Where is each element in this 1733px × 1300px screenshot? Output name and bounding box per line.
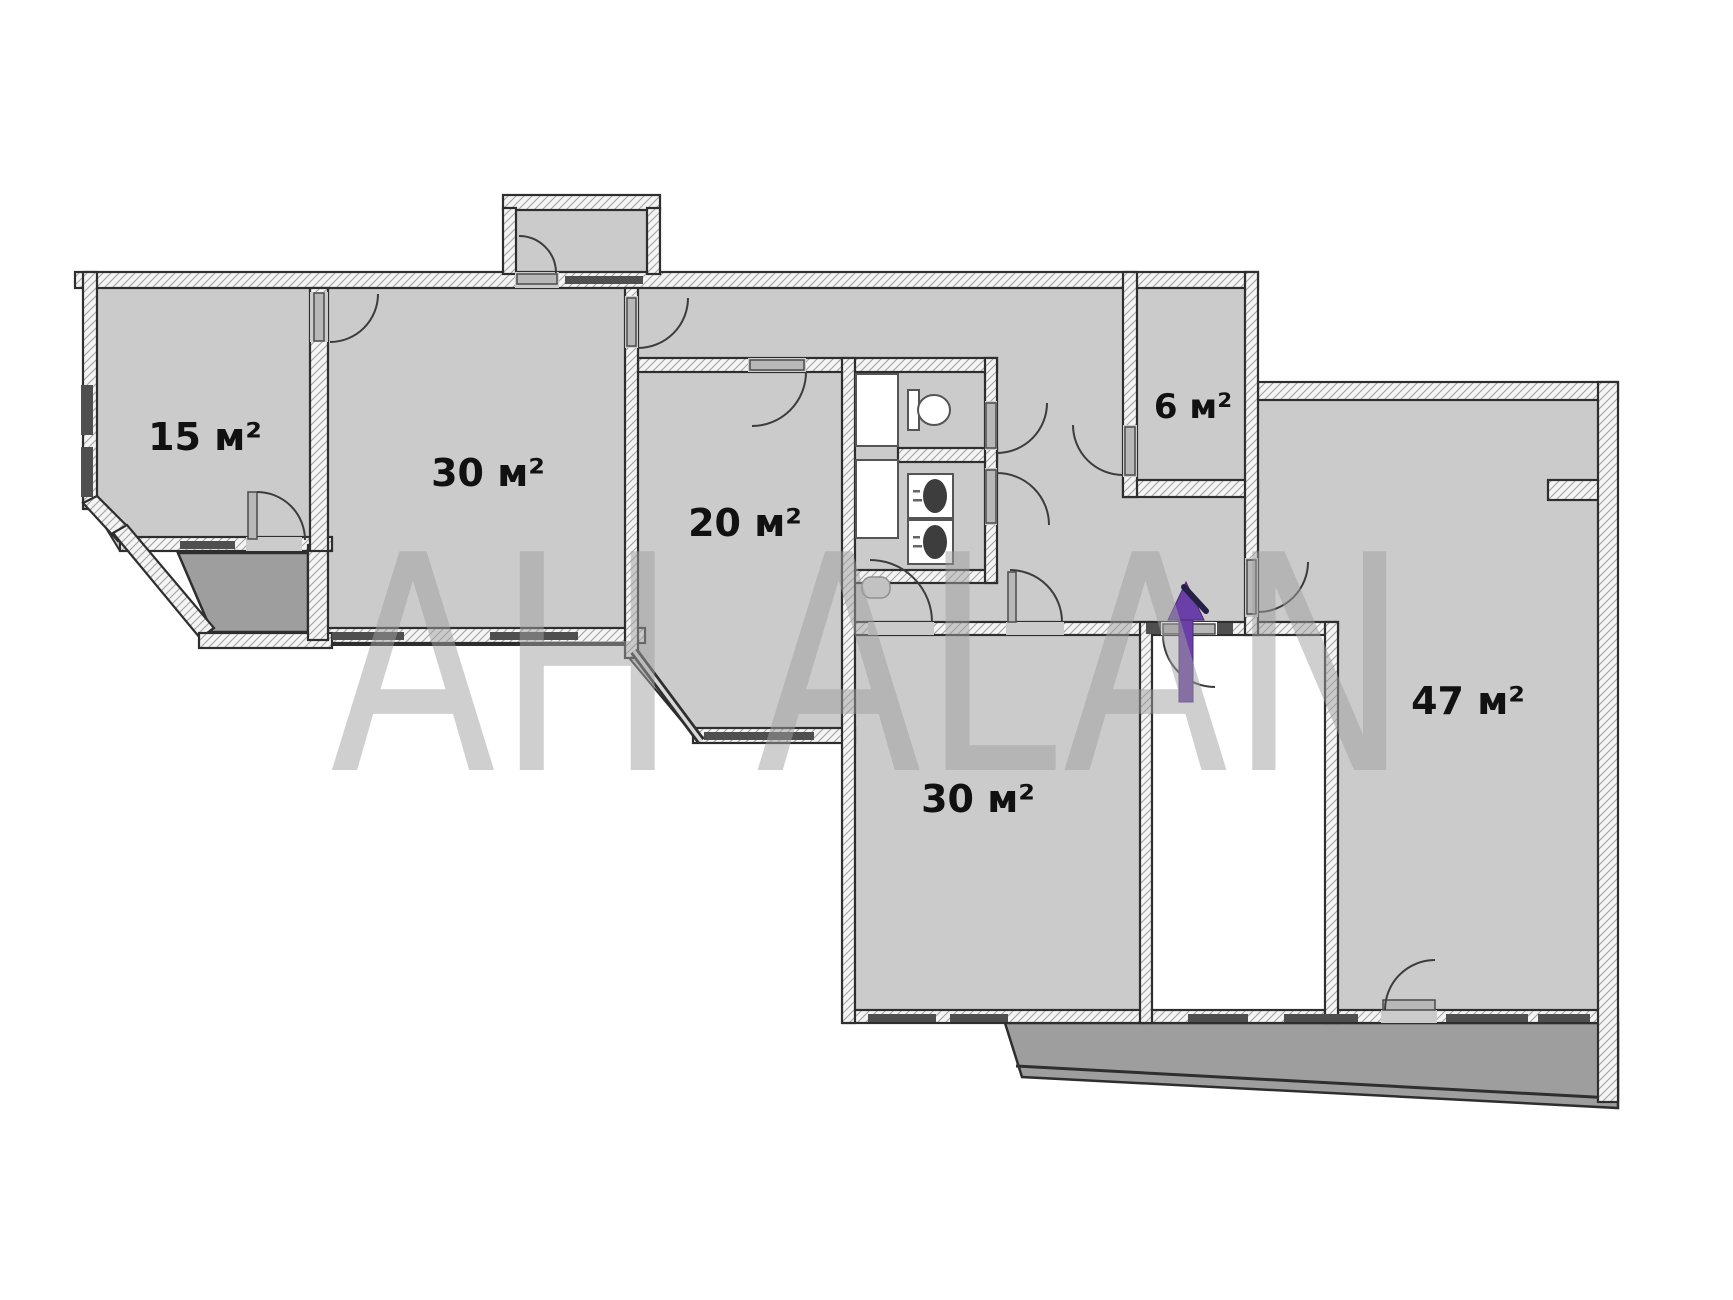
- wall-top-balcony-left: [503, 208, 516, 274]
- room-label-6: 6 м²: [1154, 387, 1232, 427]
- window-47-bottom-2: [1446, 1014, 1528, 1022]
- window-void-bottom: [1188, 1014, 1248, 1022]
- room-label-15: 15 м²: [148, 415, 262, 459]
- wall-top-balcony-right: [647, 208, 660, 274]
- wall-wc-bottom: [898, 448, 997, 462]
- wall-top-balcony-top: [503, 195, 660, 210]
- window-47-bottom-3: [1538, 1014, 1590, 1022]
- door-leaf-47-balcony: [1383, 1000, 1435, 1010]
- wall-room47-stub: [1548, 480, 1600, 500]
- bottom-balcony-floor: [1005, 1023, 1618, 1108]
- room-label-30-top: 30 м²: [431, 451, 545, 495]
- wall-right-outer: [1598, 382, 1618, 1102]
- door-leaf-room6: [1125, 427, 1135, 475]
- room-6-floor: [1123, 272, 1258, 497]
- floor-plan-page: 15 м² 30 м² 20 м² 6 м² 47 м² 30 м² АН AL…: [0, 0, 1733, 1300]
- wall-room47-top: [1258, 382, 1618, 400]
- window-15-left-1: [81, 385, 93, 435]
- wall-corridor-bottom: [638, 358, 997, 372]
- window-15-left-2: [81, 447, 93, 497]
- agency-watermark: АН ALAN: [330, 492, 1410, 841]
- room-label-47: 47 м²: [1411, 679, 1525, 723]
- vent-shaft-1: [856, 374, 898, 446]
- floor-plan-drawing: 15 м² 30 м² 20 м² 6 м² 47 м² 30 м² АН AL…: [0, 0, 1733, 1300]
- window-30bottom-1: [868, 1014, 936, 1022]
- door-leaf-15-balcony: [248, 492, 257, 539]
- window-47-bottom-1: [1284, 1014, 1358, 1022]
- window-15-bottom: [180, 541, 235, 549]
- door-leaf-wc: [986, 403, 996, 448]
- wall-left-balcony-right: [308, 545, 328, 640]
- door-leaf-top-balcony: [517, 274, 557, 284]
- wall-top-main: [75, 272, 1258, 288]
- opening-47-to-balcony: [1381, 1010, 1437, 1023]
- door-leaf-15-30: [314, 293, 324, 341]
- door-leaf-corridor-20: [750, 360, 804, 370]
- window-30bottom-2: [950, 1014, 1008, 1022]
- window-top-balcony: [565, 276, 643, 284]
- door-leaf-30-corridor: [627, 298, 636, 346]
